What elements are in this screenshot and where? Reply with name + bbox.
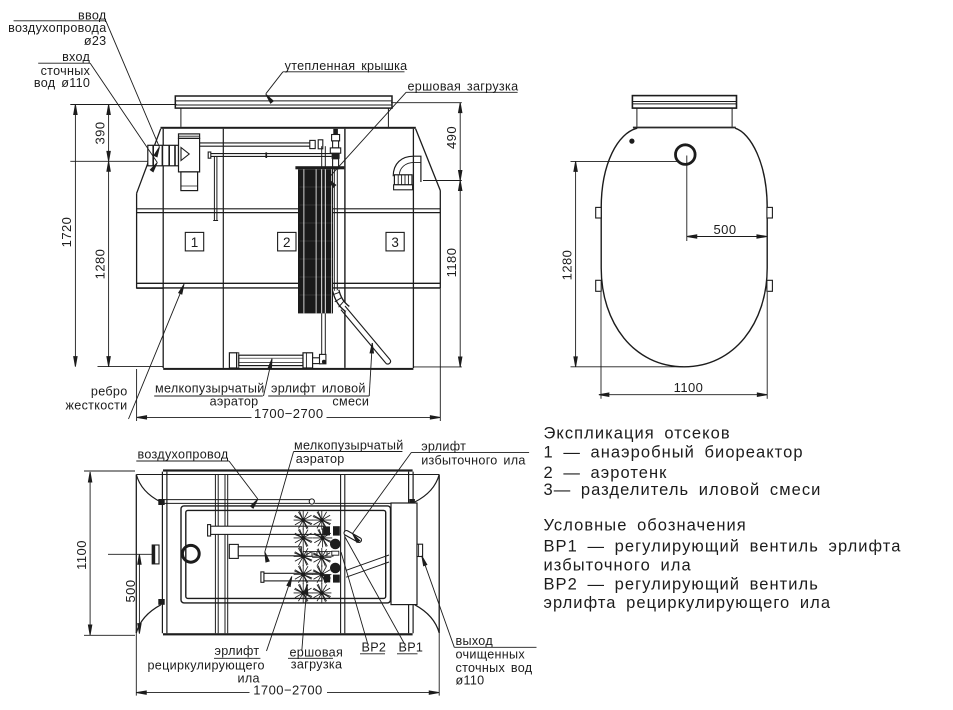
svg-text:эрлифт: эрлифт <box>421 440 466 454</box>
svg-text:аэратор: аэратор <box>296 452 345 466</box>
svg-text:выход: выход <box>456 634 494 648</box>
svg-text:ила: ила <box>238 672 260 686</box>
svg-text:1720: 1720 <box>59 217 74 248</box>
svg-text:мелкопузырчатый: мелкопузырчатый <box>155 382 265 396</box>
svg-text:ВР1 — регулирующий вентиль эр: ВР1 — регулирующий вентиль эрлифта <box>544 538 902 556</box>
svg-text:Условные обозначения: Условные обозначения <box>544 517 747 535</box>
svg-text:аэратор: аэратор <box>210 395 259 409</box>
svg-text:1700−2700: 1700−2700 <box>253 683 322 698</box>
svg-text:500: 500 <box>713 222 736 237</box>
svg-text:1100: 1100 <box>674 380 704 395</box>
svg-text:избыточного ила: избыточного ила <box>421 454 526 468</box>
svg-text:Экспликация отсеков: Экспликация отсеков <box>544 424 731 442</box>
svg-text:1: 1 <box>191 235 199 250</box>
svg-text:3— разделитель иловой смеси: 3— разделитель иловой смеси <box>544 481 822 499</box>
svg-text:ø110: ø110 <box>456 674 485 688</box>
svg-text:эрлифт иловой: эрлифт иловой <box>271 382 366 396</box>
svg-text:эрлифта рециркулирующего ила: эрлифта рециркулирующего ила <box>544 594 832 612</box>
svg-text:ВР2 — регулирующий вентиль: ВР2 — регулирующий вентиль <box>544 575 819 593</box>
svg-text:1100: 1100 <box>74 540 89 570</box>
svg-text:рециркулирующего: рециркулирующего <box>148 659 265 673</box>
svg-text:3: 3 <box>391 235 399 250</box>
svg-text:1280: 1280 <box>92 249 107 280</box>
svg-text:2 — аэротенк: 2 — аэротенк <box>544 464 668 482</box>
svg-text:500: 500 <box>123 579 138 602</box>
svg-text:жесткости: жесткости <box>66 398 128 412</box>
svg-text:390: 390 <box>92 121 107 144</box>
svg-text:мелкопузырчатый: мелкопузырчатый <box>294 439 404 453</box>
svg-text:ВР2: ВР2 <box>362 641 387 655</box>
svg-text:ершовая загрузка: ершовая загрузка <box>408 80 519 94</box>
svg-text:воздухопровода: воздухопровода <box>8 21 106 35</box>
svg-text:загрузка: загрузка <box>291 658 343 672</box>
svg-text:1700−2700: 1700−2700 <box>254 406 323 421</box>
svg-text:2: 2 <box>283 235 291 250</box>
svg-text:1280: 1280 <box>559 250 574 281</box>
svg-text:ребро: ребро <box>91 385 128 399</box>
svg-text:утепленная крышка: утепленная крышка <box>285 59 408 73</box>
svg-text:ВР1: ВР1 <box>399 641 424 655</box>
svg-text:вод ø110: вод ø110 <box>34 76 90 90</box>
svg-text:1 — анаэробный биореактор: 1 — анаэробный биореактор <box>544 443 804 461</box>
svg-text:вход: вход <box>62 50 90 64</box>
svg-text:очищенных: очищенных <box>456 648 526 662</box>
svg-text:избыточного ила: избыточного ила <box>544 556 692 574</box>
svg-text:1180: 1180 <box>444 248 459 278</box>
svg-text:воздухопровод: воздухопровод <box>138 448 229 462</box>
svg-text:эрлифт: эрлифт <box>214 644 259 658</box>
svg-text:490: 490 <box>444 126 459 149</box>
svg-text:ø23: ø23 <box>84 34 107 48</box>
svg-text:смеси: смеси <box>332 395 369 409</box>
